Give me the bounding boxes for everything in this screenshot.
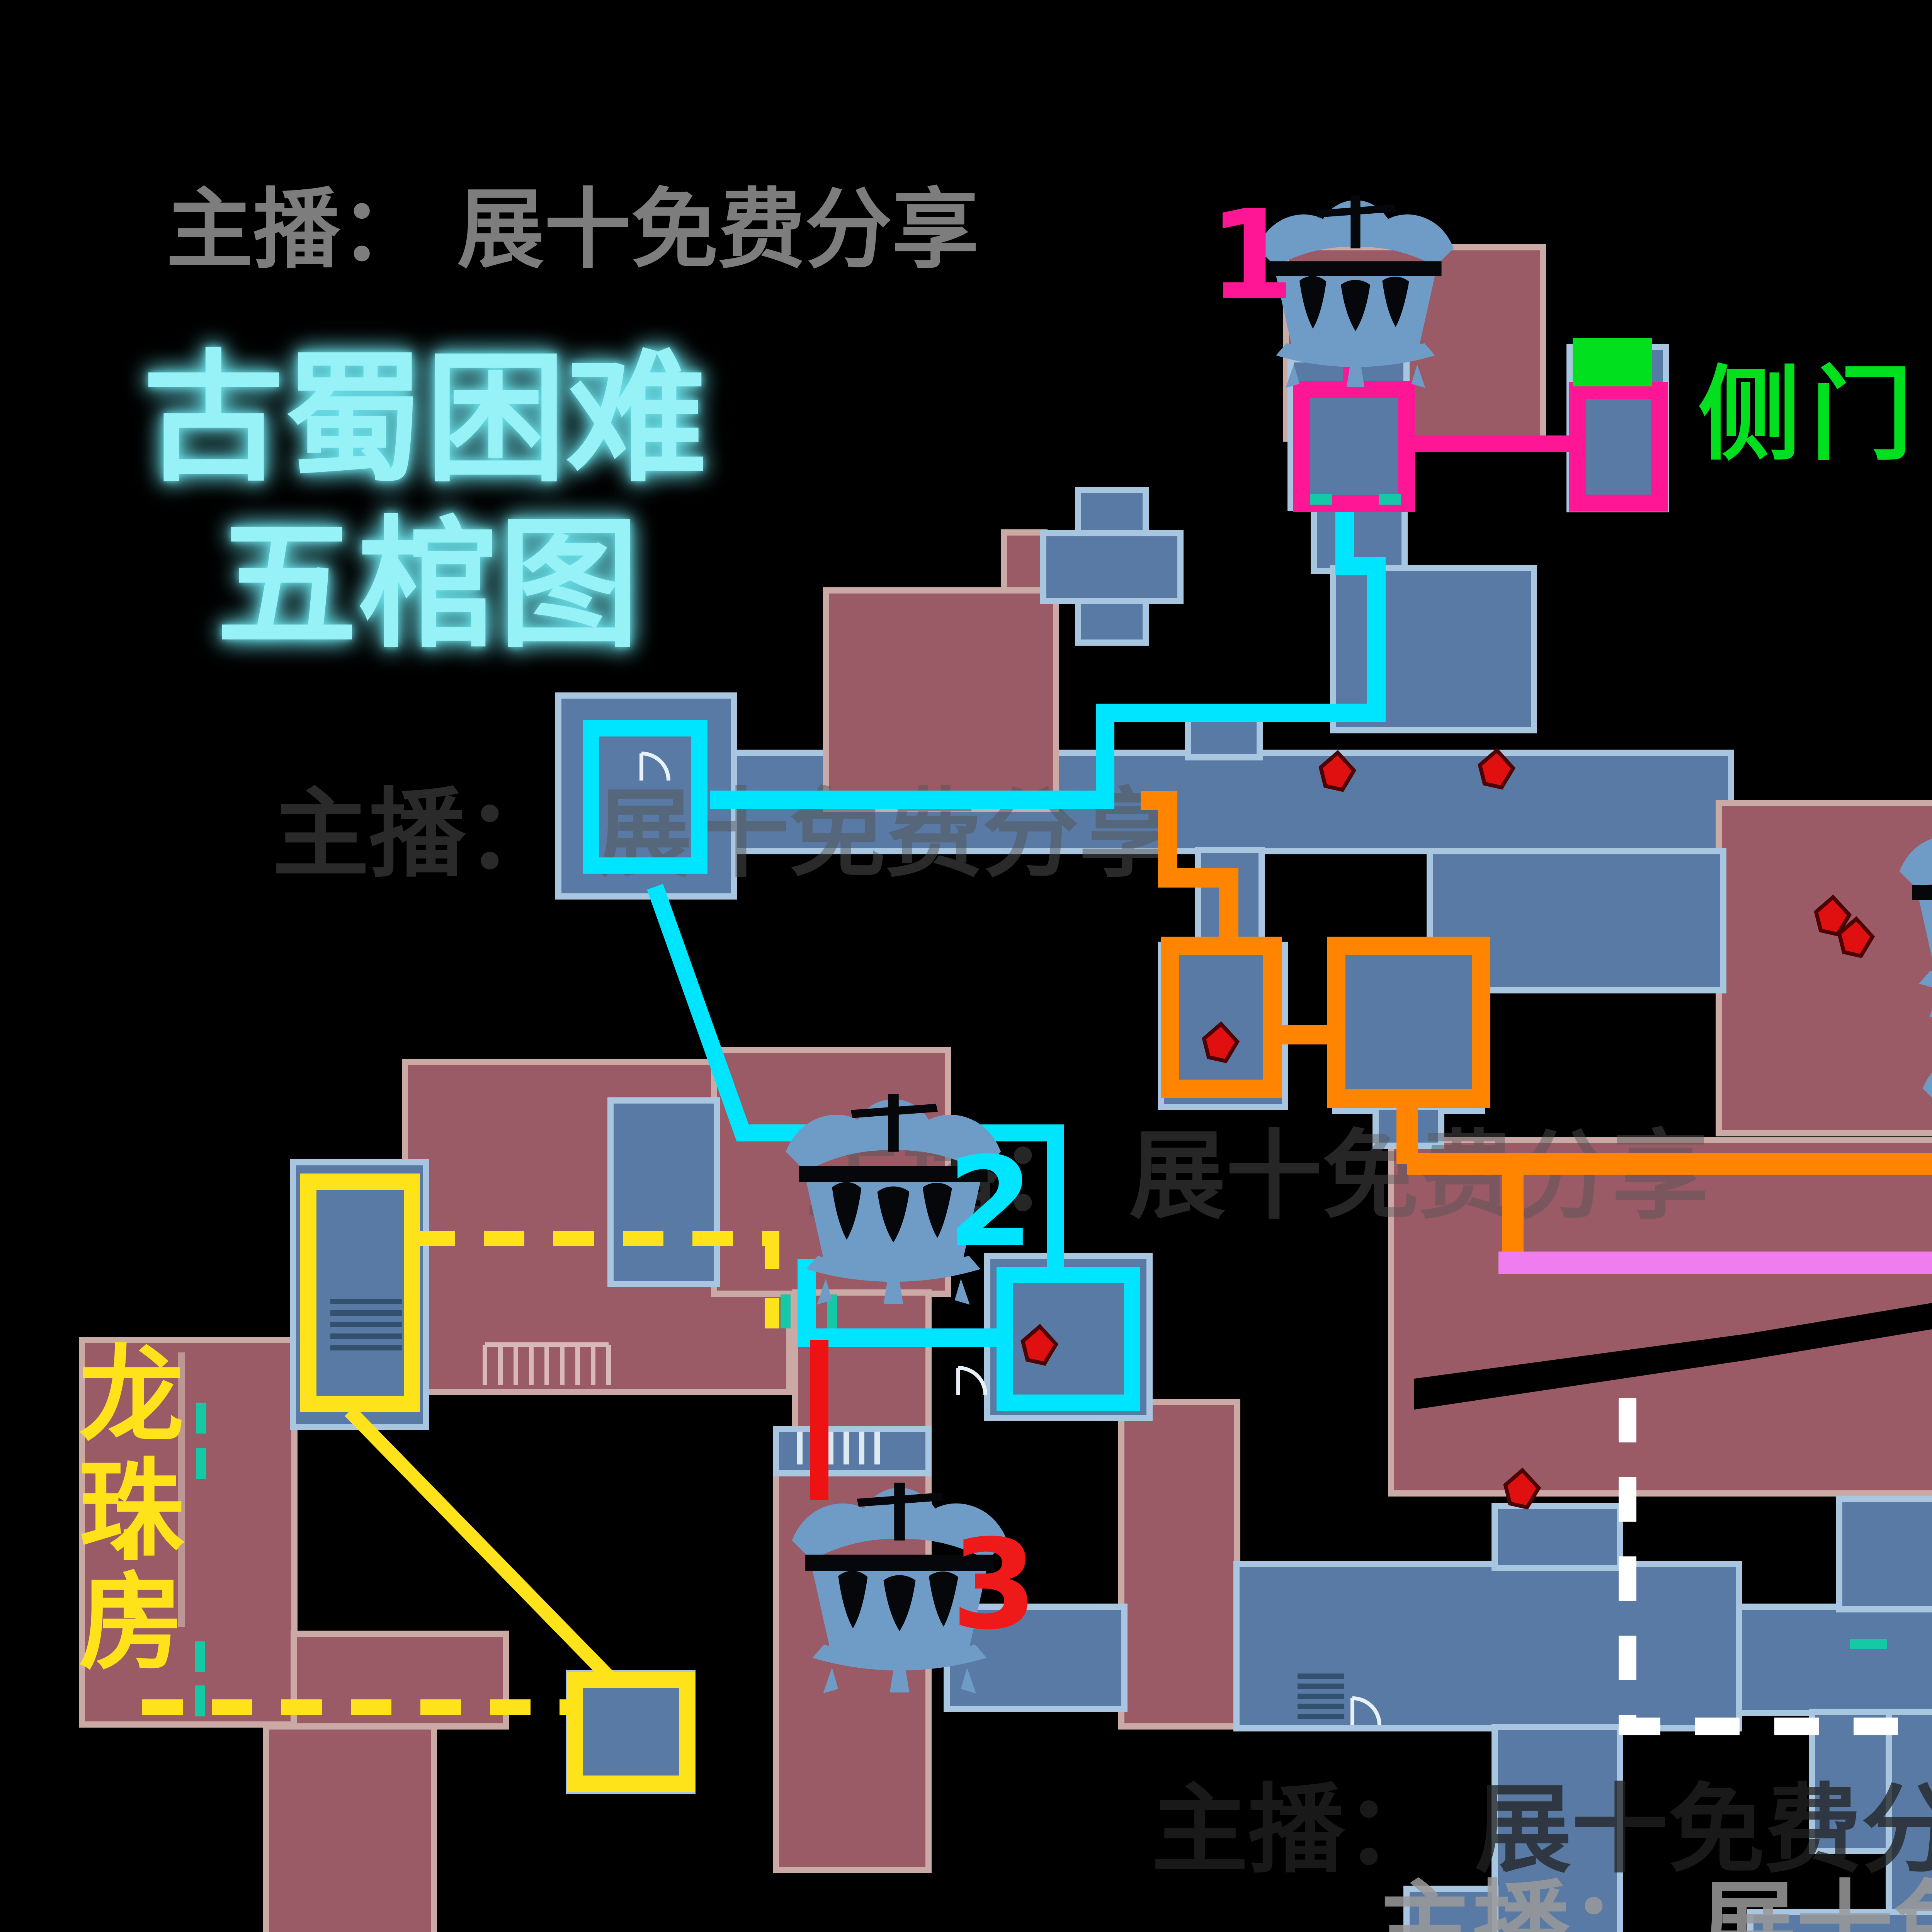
door-marker — [196, 1448, 206, 1479]
map-room — [1043, 533, 1180, 601]
map-room — [1121, 1402, 1237, 1726]
map-room — [611, 1100, 717, 1284]
map-room — [826, 590, 1056, 809]
door-marker — [781, 1294, 791, 1328]
door-marker — [195, 1641, 205, 1672]
dragon-room-char: 房 — [79, 1562, 184, 1684]
door-marker — [1310, 494, 1332, 505]
page-title-line2: 五棺图 — [216, 503, 639, 667]
map-room — [294, 1634, 506, 1726]
door-marker — [196, 1403, 206, 1434]
watermark-top: 主播： 展十免费分享 — [166, 179, 979, 281]
coffin-number-2: 2 — [947, 1131, 1034, 1274]
map-corridor — [1495, 1506, 1620, 1568]
map-room — [266, 1726, 434, 1932]
watermark-bottom-gray: 主播： 展十免费分享 — [1376, 1870, 1932, 1932]
map-room — [569, 1673, 692, 1791]
dragon-room-char: 龙 — [79, 1335, 184, 1457]
map-corridor — [1739, 1607, 1932, 1713]
coffin-number-3: 3 — [951, 1513, 1037, 1657]
page-title-line1: 古蜀困难 — [143, 337, 707, 501]
side-door-marker — [1573, 338, 1652, 386]
map-canvas: 主播： 展十免费分享 主播： 展十免费分享 主播： 展十免费分享 — [0, 0, 1932, 1932]
dragon-room-label: 龙 珠 房 — [79, 1335, 185, 1684]
map-corridor — [1839, 1499, 1932, 1609]
map-room — [1335, 945, 1482, 1111]
door-marker — [1379, 494, 1401, 505]
map-room — [1719, 803, 1932, 1133]
dragon-room-char: 珠 — [79, 1449, 185, 1571]
side-door-label: 侧门 — [1698, 355, 1922, 474]
door-marker — [1850, 1639, 1887, 1649]
door-marker — [195, 1685, 205, 1716]
coffin-number-1: 1 — [1209, 184, 1295, 328]
watermark-bottom-dark: 主播： 展十免费分享 — [1151, 1774, 1932, 1886]
